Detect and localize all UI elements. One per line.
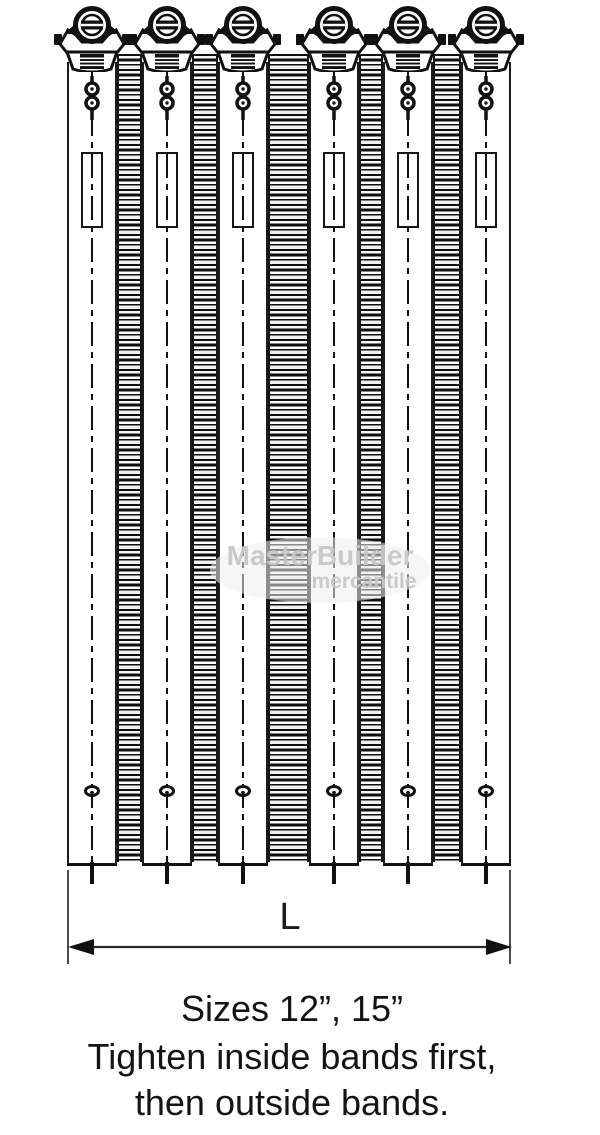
hatched-band <box>359 54 383 862</box>
bolt-head-icon <box>448 4 524 72</box>
bolt-end <box>241 862 245 884</box>
pivot-circle <box>235 785 251 797</box>
bolt-head-icon <box>205 4 281 72</box>
bolt-head-icon <box>296 4 372 72</box>
chain-link-icon <box>158 76 176 120</box>
band-slot <box>156 152 178 228</box>
arrowhead-left-icon <box>68 939 94 955</box>
band-slot <box>397 152 419 228</box>
band-slot <box>323 152 345 228</box>
chain-link-icon <box>477 76 495 120</box>
pivot-circle <box>478 785 494 797</box>
pivot-dot <box>406 791 410 794</box>
bolt-end <box>406 862 410 884</box>
hatched-band <box>433 54 461 862</box>
chain-link-icon <box>399 76 417 120</box>
pivot-dot <box>90 791 94 794</box>
bolt-end <box>332 862 336 884</box>
technical-drawing: MasterBuilder mercantile L Sizes 12”, 15… <box>0 0 600 1135</box>
bolt-end <box>90 862 94 884</box>
arrowhead-right-icon <box>486 939 512 955</box>
band-slot <box>232 152 254 228</box>
chain-link-icon <box>83 76 101 120</box>
chain-link-icon <box>325 76 343 120</box>
bolt-head-icon <box>54 4 130 72</box>
pivot-dot <box>241 791 245 794</box>
dimension-arrow <box>58 934 522 960</box>
bolt-head-icon <box>370 4 446 72</box>
hatched-band <box>117 54 142 862</box>
pivot-circle <box>84 785 100 797</box>
pivot-circle <box>159 785 175 797</box>
bolt-head-icon <box>129 4 205 72</box>
pivot-circle <box>326 785 342 797</box>
caption-sizes: Sizes 12”, 15” <box>0 988 584 1029</box>
pivot-circle <box>400 785 416 797</box>
bolt-end <box>484 862 488 884</box>
hatched-band <box>192 54 218 862</box>
pivot-dot <box>484 791 488 794</box>
dimension-label: L <box>0 896 580 939</box>
band-slot <box>475 152 497 228</box>
hatched-band <box>268 54 309 862</box>
chain-link-icon <box>234 76 252 120</box>
band-slot <box>81 152 103 228</box>
pivot-dot <box>332 791 336 794</box>
caption-instruction-2: then outside bands. <box>0 1082 584 1123</box>
pivot-dot <box>165 791 169 794</box>
bolt-end <box>165 862 169 884</box>
caption-instruction-1: Tighten inside bands first, <box>0 1036 584 1077</box>
